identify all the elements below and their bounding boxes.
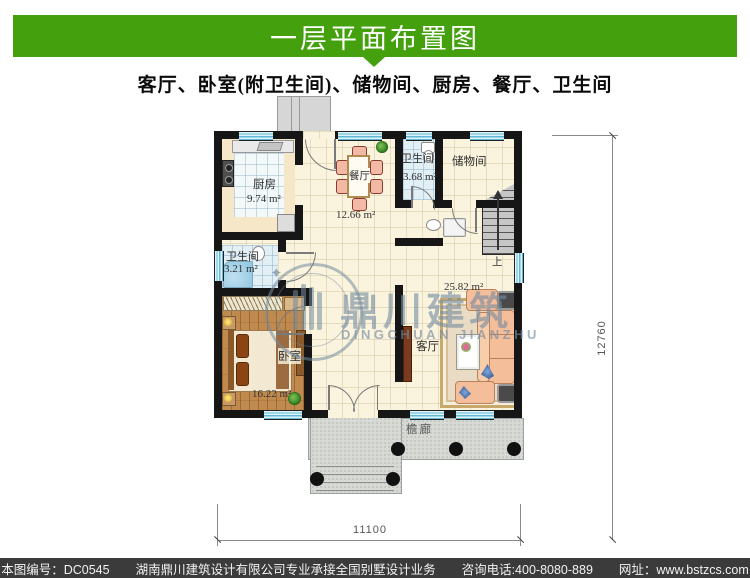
window xyxy=(470,131,504,141)
storage-label: 储物间 xyxy=(452,153,487,169)
column-icon xyxy=(449,442,463,456)
lamp-icon xyxy=(224,394,232,402)
bath-left-label: 卫生间 xyxy=(226,248,259,264)
dim-height-value: 12760 xyxy=(596,318,608,358)
wall xyxy=(395,200,411,208)
porch-label: 檐廊 xyxy=(406,421,433,437)
living-area: 25.82 m² xyxy=(444,281,483,293)
wall xyxy=(304,334,312,410)
dim-width-value: 11100 xyxy=(340,524,400,536)
room-list-subtitle: 客厅、卧室(附卫生间)、储物间、厨房、餐厅、卫生间 xyxy=(0,70,750,97)
kitchen-sink-icon xyxy=(257,142,284,151)
wall xyxy=(395,238,443,246)
footer-drawing-no: 本图编号：DC0545 xyxy=(1,559,109,578)
door-leaf xyxy=(276,333,304,335)
column-icon xyxy=(310,472,324,486)
dining-chair xyxy=(370,160,383,175)
dining-chair xyxy=(370,179,383,194)
window xyxy=(214,251,224,281)
footer-company: 湖南鼎川建筑设计有限公司专业承接全国别墅设计业务 xyxy=(136,559,436,578)
stairs-up-label: 上 xyxy=(492,254,503,269)
dim-extension xyxy=(552,135,618,136)
dining-area: 12.66 m² xyxy=(336,209,375,221)
plant-icon xyxy=(376,141,388,153)
stairs-arrow-line xyxy=(497,198,499,250)
wall xyxy=(278,240,286,252)
title-bar-pointer xyxy=(363,57,385,67)
door-leaf xyxy=(377,385,379,410)
floor-plan-page: 一层平面布置图 客厅、卧室(附卫生间)、储物间、厨房、餐厅、卫生间 檐廊 餐厅 xyxy=(0,0,750,578)
entry-steps xyxy=(316,466,394,491)
wall xyxy=(433,200,452,208)
wall xyxy=(278,280,286,288)
pillow-icon xyxy=(236,334,249,358)
bath-top-area: 3.68 m² xyxy=(403,171,437,183)
door-leaf xyxy=(328,385,330,410)
dining-room-label: 餐厅 xyxy=(349,168,370,183)
footer-website: 网址：www.bstzcs.com xyxy=(619,559,749,578)
kitchen-area: 9.74 m² xyxy=(247,193,281,205)
pillow-icon xyxy=(236,362,249,386)
door-leaf xyxy=(334,139,336,169)
wall xyxy=(295,139,303,165)
wall xyxy=(378,410,522,418)
wall xyxy=(395,285,403,382)
tv-cabinet xyxy=(403,326,412,382)
bed-headboard xyxy=(228,330,234,390)
burner-icon xyxy=(225,164,233,172)
door-opening xyxy=(303,131,335,139)
coffee-table xyxy=(456,334,480,370)
bath-left-area: 3.21 m² xyxy=(224,263,258,275)
door-leaf xyxy=(411,186,413,208)
window xyxy=(264,410,302,420)
column-icon xyxy=(507,442,521,456)
column-icon xyxy=(391,442,405,456)
living-label: 客厅 xyxy=(416,338,439,354)
wall xyxy=(295,205,303,232)
wall xyxy=(214,232,303,240)
door-leaf xyxy=(286,252,314,254)
column-icon xyxy=(386,472,400,486)
back-steps xyxy=(277,96,331,133)
stairs-arrow-head-icon xyxy=(493,190,503,199)
bedroom-label: 卧室 xyxy=(278,348,301,364)
window xyxy=(338,131,382,141)
window xyxy=(239,131,273,141)
bedroom-area: 16.22 m² xyxy=(252,388,291,400)
wall xyxy=(435,139,443,200)
window xyxy=(514,253,524,283)
title-bar: 一层平面布置图 xyxy=(13,15,737,57)
wall xyxy=(304,288,312,306)
page-title: 一层平面布置图 xyxy=(270,17,480,56)
wall xyxy=(214,288,312,296)
lamp-icon xyxy=(224,318,232,326)
window xyxy=(410,410,444,420)
basin-icon xyxy=(426,219,441,231)
dim-line-vertical xyxy=(612,136,613,540)
footer-bar: 本图编号：DC0545 湖南鼎川建筑设计有限公司专业承接全国别墅设计业务 咨询电… xyxy=(0,558,750,578)
fridge-icon xyxy=(277,214,295,232)
dim-line-horizontal xyxy=(217,540,520,541)
window xyxy=(406,131,432,141)
window xyxy=(456,410,494,420)
footer-phone: 咨询电话:400-8080-889 xyxy=(462,559,593,578)
flower-decor-icon xyxy=(461,342,471,352)
door-leaf xyxy=(475,208,477,232)
kitchen-label: 厨房 xyxy=(253,176,276,192)
wall xyxy=(476,200,514,208)
burner-icon xyxy=(225,176,233,184)
bath-top-label: 卫生间 xyxy=(401,150,434,166)
wardrobe xyxy=(223,296,283,311)
